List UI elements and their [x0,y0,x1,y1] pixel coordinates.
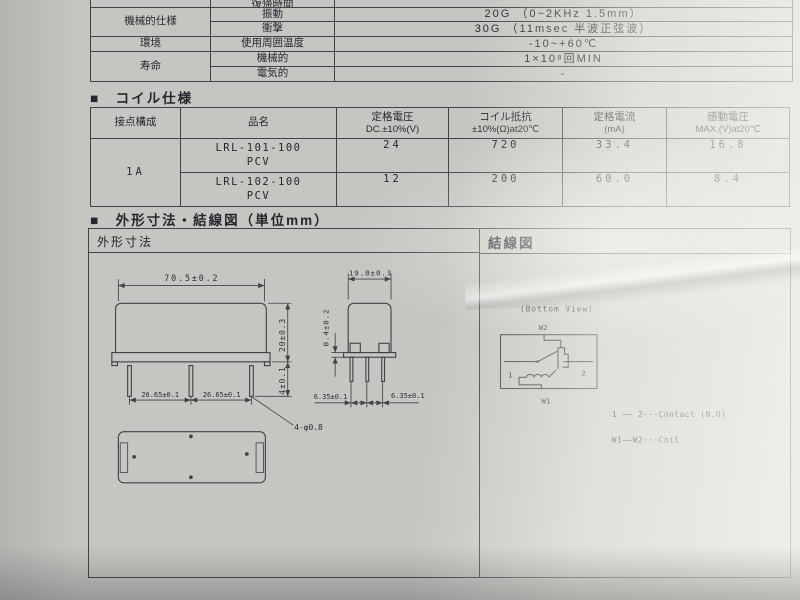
spec-value-life-mechanical: 1×10⁸回MIN [335,52,793,67]
spec-clipped-param: 復帰時間 [211,0,334,8]
dimensions-panel-header: 外形寸法 [89,229,479,253]
dim-depth: 19.0±0.3 [349,268,392,277]
wiring-panel-header: 結線図 [480,229,790,254]
coil-header-operate-voltage-line1: 感動電圧 [667,111,789,124]
spec-value-temperature: -10~+60℃ [335,37,793,52]
dim-pitch-2: 26.65±0.1 [203,391,241,399]
coil-part-name-2-line2: PCV [181,190,336,203]
dim-pitch-1: 26.65±0.1 [141,391,179,399]
spec-group-mechanical: 機械的仕様 [91,8,211,37]
spec-group-environment: 環境 [91,37,211,52]
spec-clipped-param-cell: 復帰時間 [211,0,335,8]
coil-header-operate-voltage-line2: MAX.(V)at20℃ [667,124,789,136]
coil-part-name-1-line2: PCV [181,156,336,169]
coil-section-title: ■ コイル仕様 [90,87,193,107]
coil-header-voltage: 定格電圧 DC.±10%(V) [337,108,449,139]
coil-voltage-1: 24 [337,139,449,173]
coil-operate-voltage-1: 16.8 [667,139,790,173]
dimension-drawing: 70.5±0.2 20±0.3 4±0.1 [89,253,479,575]
coil-resistance-1: 720 [449,139,563,173]
outline-section-title: ■ 外形寸法・結線図（単位mm） [90,209,330,229]
bottom-view-label: (Bottom View) [520,305,594,314]
coil-part-name-2-line1: LRL-102-100 [181,176,336,189]
dim-pin-diameter: 4-φ0.8 [294,423,323,432]
table-row: 1A LRL-101-100 PCV 24 720 33.4 16.8 [91,139,790,173]
coil-current-2: 60.0 [563,173,667,207]
spec-param-temperature: 使用周囲温度 [211,37,335,52]
dim-pitch-left: 6.35±0.1 [314,393,348,401]
spec-table: 復帰時間 機械的仕様 振動 20G （0~2KHz 1.5mm） 衝撃 30G … [90,0,793,82]
terminal-w2-label: W2 [539,323,548,332]
pin-2-label: 2 [581,369,585,378]
coil-part-name-1: LRL-101-100 PCV [181,139,337,173]
coil-header-voltage-line2: DC.±10%(V) [337,124,448,136]
spec-param-vibration: 振動 [211,8,335,22]
coil-header-current: 定格電流 (mA) [563,108,667,139]
pin-hole [189,475,193,479]
coil-header-voltage-line1: 定格電圧 [337,111,448,124]
coil-header-resistance-line2: ±10%(Ω)at20℃ [449,124,562,136]
coil-header-name: 品名 [181,108,337,139]
outline-drawing-box: 外形寸法 結線図 70.5±0.2 [88,228,791,578]
spec-param-life-electrical: 電気的 [211,67,335,82]
scanned-datasheet-page: 復帰時間 機械的仕様 振動 20G （0~2KHz 1.5mm） 衝撃 30G … [0,0,800,600]
dim-pin-length: 4±0.1 [278,366,287,394]
table-row: LRL-102-100 PCV 12 200 60.0 8.4 [91,173,790,207]
dim-standoff: 0.4±0.2 [322,309,331,347]
relay-schematic [504,335,593,389]
terminal-w1-label: W1 [541,396,550,405]
coil-contact-config: 1A [91,139,181,207]
pin-hole [132,455,136,459]
coil-header-operate-voltage: 感動電圧 MAX.(V)at20℃ [667,108,790,139]
dim-pitch-right: 6.35±0.1 [391,392,425,400]
side-view-drawing: 70.5±0.2 20±0.3 4±0.1 [112,273,323,432]
spec-group-life: 寿命 [91,52,211,82]
legend-contact: 1 ―― 2···Contact (N.O) [612,410,727,419]
pin-hole [189,434,193,438]
end-view-drawing: 19.0±0.3 0.4±0.2 6. [314,268,425,407]
spec-value-vibration: 20G （0~2KHz 1.5mm） [335,8,793,22]
pin-hole [245,452,249,456]
dim-width: 70.5±0.2 [164,273,219,283]
coil-header-resistance-line1: コイル抵抗 [449,111,562,124]
coil-header-current-line2: (mA) [563,124,666,136]
coil-table: 接点構成 品名 定格電圧 DC.±10%(V) コイル抵抗 ±10%(Ω)at2… [90,107,790,207]
coil-part-name-1-line1: LRL-101-100 [181,142,336,155]
legend-coil: W1――W2···Coil [612,435,680,444]
coil-current-1: 33.4 [563,139,667,173]
pin-1-label: 1 [508,370,512,379]
coil-voltage-2: 12 [337,173,449,207]
coil-header-resistance: コイル抵抗 ±10%(Ω)at20℃ [449,108,563,139]
spec-clipped-group-cell [91,0,211,8]
coil-operate-voltage-2: 8.4 [667,173,790,207]
coil-part-name-2: LRL-102-100 PCV [181,173,337,207]
coil-header-current-line1: 定格電流 [563,111,666,124]
spec-value-shock: 30G （11msec 半波正弦波） [335,22,793,37]
spec-value-life-electrical: - [335,67,793,82]
spec-param-life-mechanical: 機械的 [211,52,335,67]
dim-height: 20±0.3 [278,318,287,352]
coil-header-config: 接点構成 [91,108,181,139]
spec-param-shock: 衝撃 [211,22,335,37]
wiring-diagram: (Bottom View) W2 W1 1 2 1 ―― 2···Contact… [480,254,790,574]
coil-resistance-2: 200 [449,173,563,207]
spec-clipped-value-cell [335,0,793,8]
bottom-view-drawing [118,432,265,483]
